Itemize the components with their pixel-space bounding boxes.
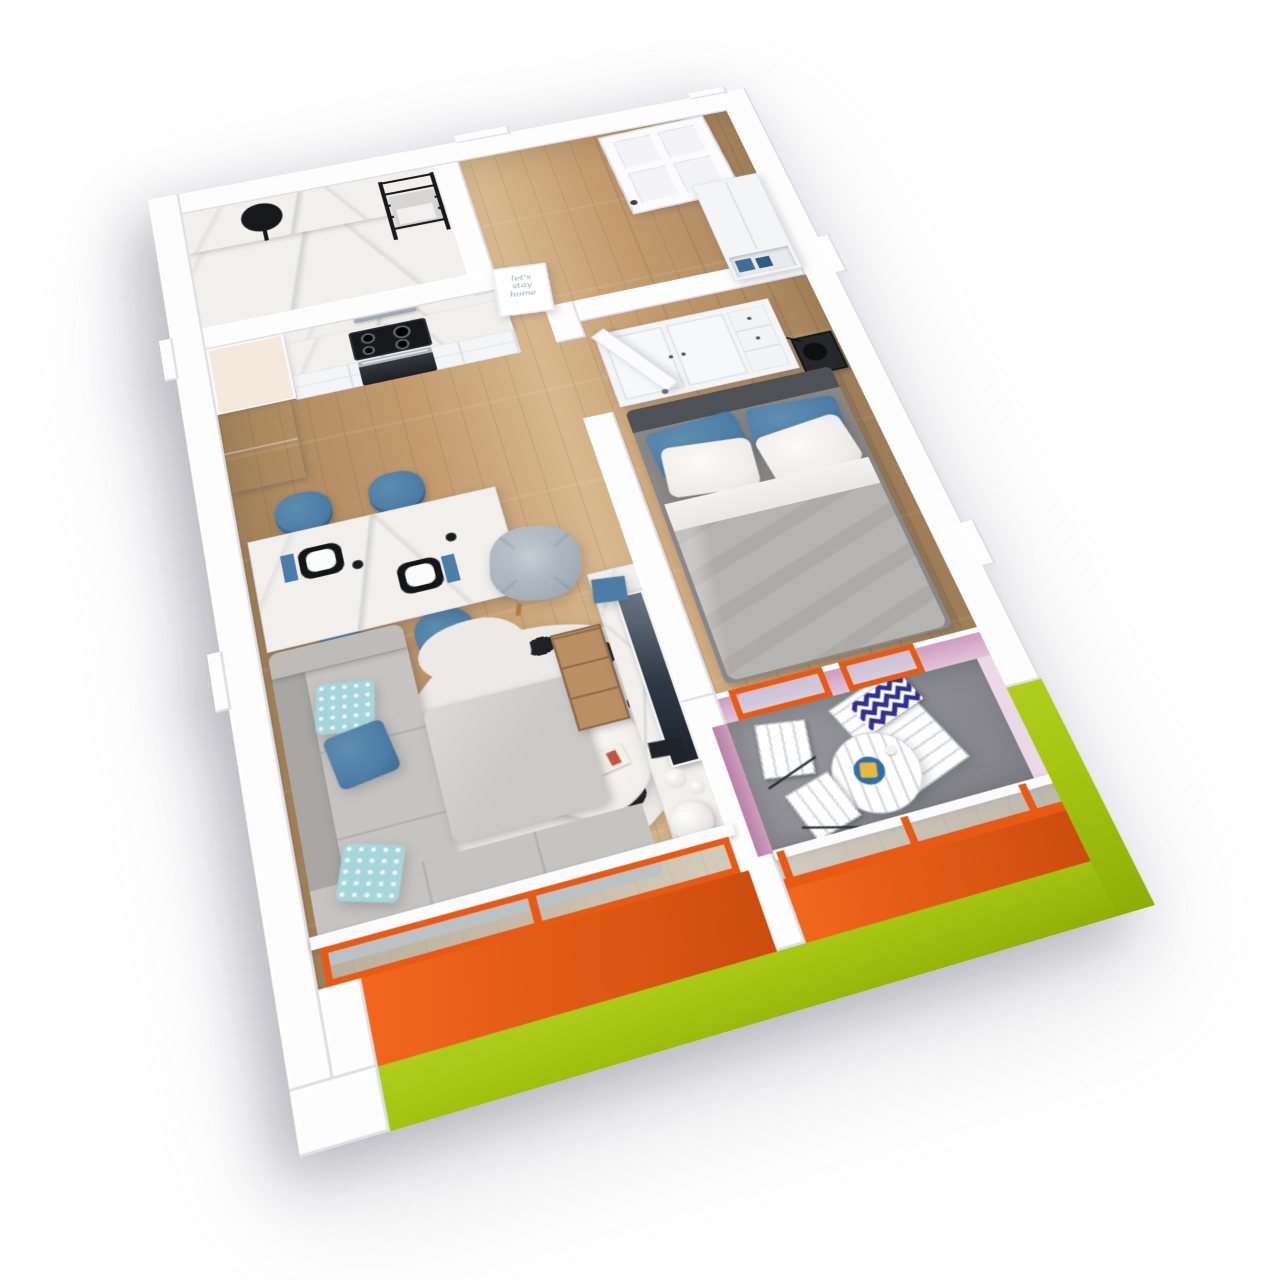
floor-plan-scene: let's stay home xyxy=(0,0,1280,1280)
pillow-teal-dotted-2 xyxy=(335,843,406,903)
decor-blue-box xyxy=(591,576,628,604)
yellow-snack xyxy=(859,762,878,778)
fridge xyxy=(218,400,306,494)
apartment-3d-floor-plan: let's stay home xyxy=(148,88,1155,1158)
folding-chair-1 xyxy=(754,719,816,780)
stay-home-poster: let's stay home xyxy=(491,263,554,318)
poster-text: let's stay home xyxy=(495,272,549,300)
building-shadow: let's stay home xyxy=(0,0,1280,1280)
